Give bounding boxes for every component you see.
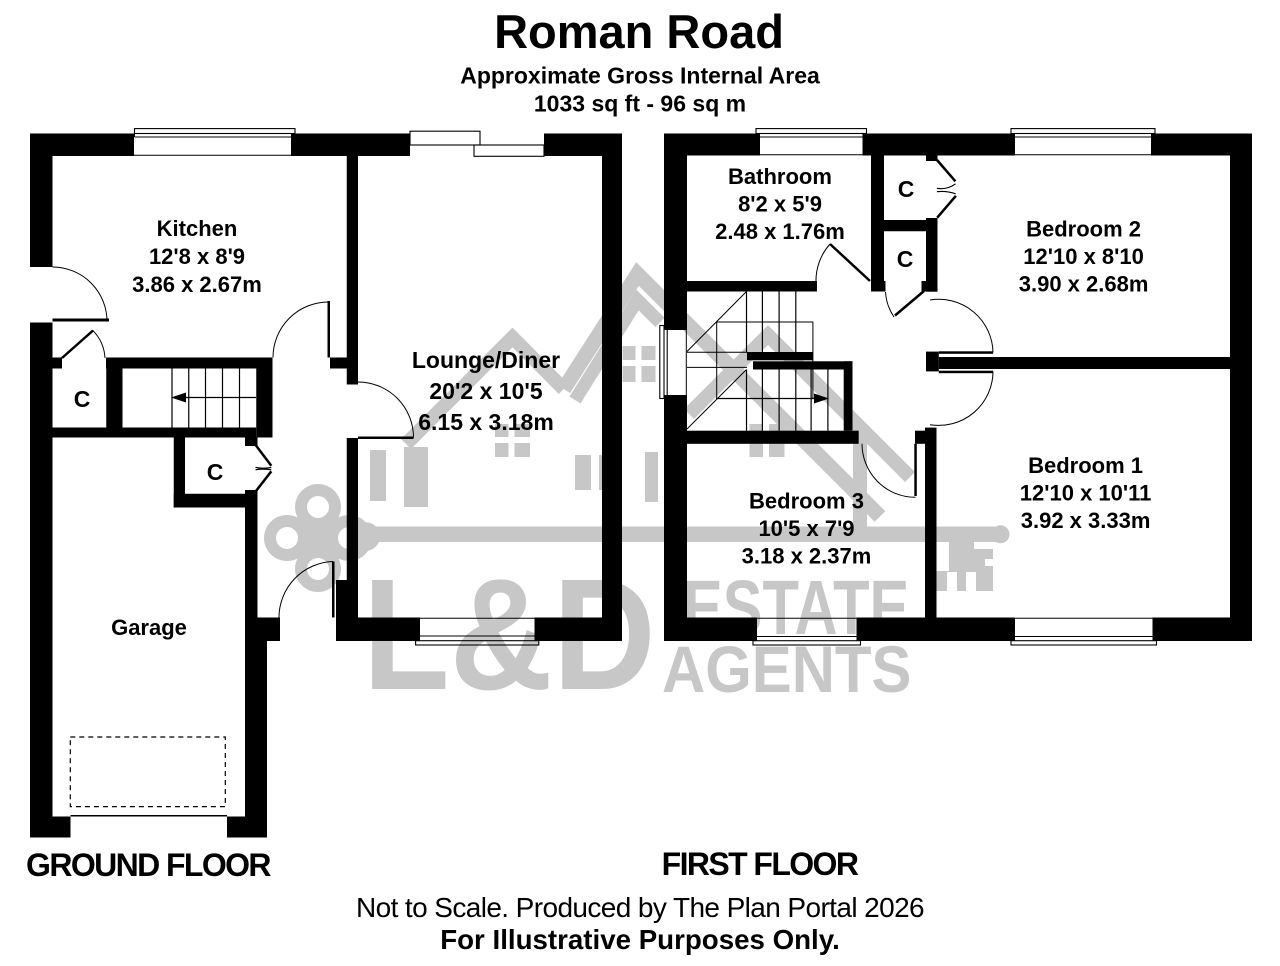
- svg-text:Not to Scale. Produced by The: Not to Scale. Produced by The Plan Porta…: [356, 892, 924, 923]
- svg-text:12'8 x 8'9: 12'8 x 8'9: [149, 244, 245, 269]
- svg-text:1033 sq ft - 96 sq m: 1033 sq ft - 96 sq m: [534, 91, 746, 117]
- svg-text:Lounge/Diner: Lounge/Diner: [412, 347, 560, 373]
- svg-text:12'10 x 8'10: 12'10 x 8'10: [1023, 244, 1144, 269]
- svg-text:6.15 x 3.18m: 6.15 x 3.18m: [418, 409, 554, 435]
- svg-text:C: C: [897, 246, 914, 272]
- svg-text:C: C: [898, 176, 915, 202]
- svg-text:Approximate Gross Internal Are: Approximate Gross Internal Area: [460, 63, 820, 89]
- svg-text:3.92 x 3.33m: 3.92 x 3.33m: [1021, 508, 1151, 533]
- svg-text:Bathroom: Bathroom: [728, 164, 832, 189]
- svg-text:3.18 x 2.37m: 3.18 x 2.37m: [742, 544, 872, 569]
- svg-text:Garage: Garage: [111, 615, 187, 640]
- svg-text:Bedroom 2: Bedroom 2: [1026, 217, 1141, 242]
- svg-text:C: C: [74, 386, 91, 412]
- svg-text:FIRST FLOOR: FIRST FLOOR: [662, 846, 859, 882]
- svg-text:C: C: [207, 459, 224, 485]
- svg-text:Roman Road: Roman Road: [494, 5, 784, 58]
- svg-text:GROUND FLOOR: GROUND FLOOR: [26, 847, 271, 883]
- svg-text:3.86 x 2.67m: 3.86 x 2.67m: [132, 272, 262, 297]
- svg-text:8'2 x 5'9: 8'2 x 5'9: [738, 192, 822, 217]
- svg-text:Kitchen: Kitchen: [157, 216, 238, 241]
- svg-text:2.48 x 1.76m: 2.48 x 1.76m: [715, 219, 845, 244]
- svg-text:Bedroom 3: Bedroom 3: [749, 489, 864, 514]
- svg-text:3.90 x 2.68m: 3.90 x 2.68m: [1019, 272, 1149, 297]
- svg-text:12'10 x 10'11: 12'10 x 10'11: [1020, 481, 1152, 506]
- svg-text:20'2 x 10'5: 20'2 x 10'5: [429, 378, 542, 404]
- svg-text:Bedroom 1: Bedroom 1: [1028, 453, 1143, 478]
- svg-text:AGENTS: AGENTS: [662, 633, 911, 706]
- svg-text:10'5 x 7'9: 10'5 x 7'9: [758, 516, 854, 541]
- svg-text:For Illustrative Purposes Only: For Illustrative Purposes Only.: [440, 924, 840, 955]
